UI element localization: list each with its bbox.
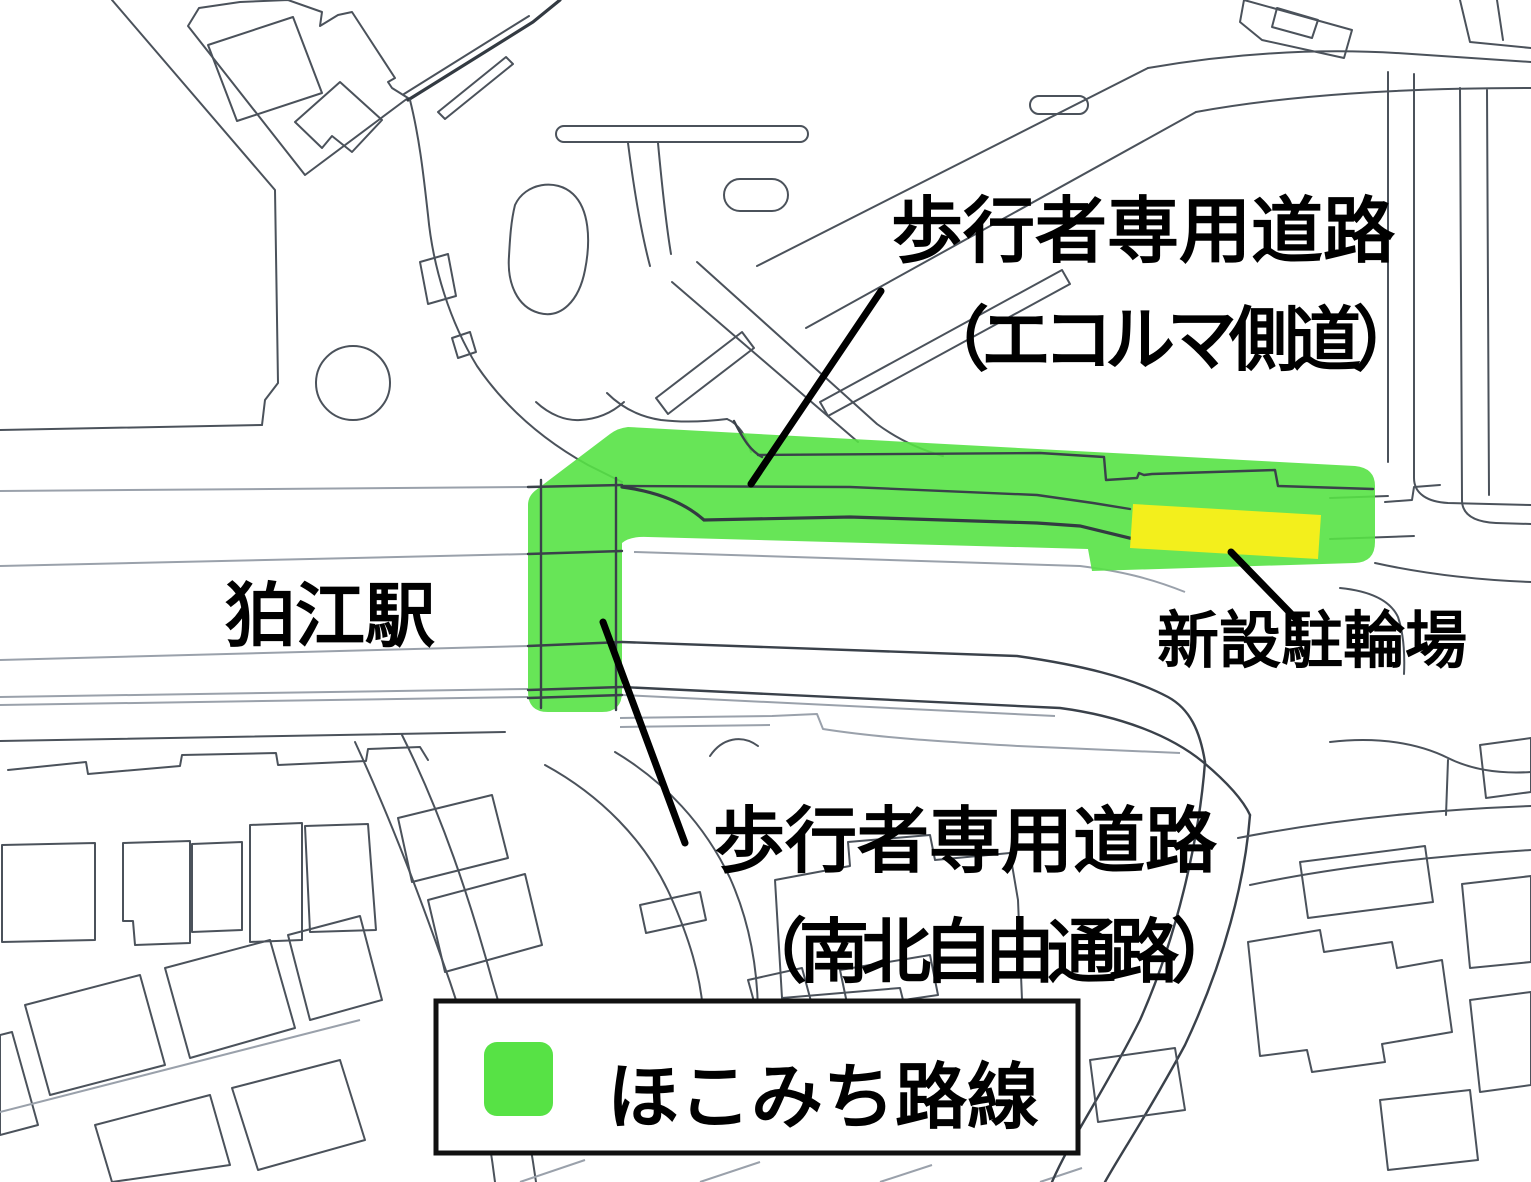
legend-label: ほこみち路線	[607, 1055, 1039, 1139]
map-labels: 歩行者専用道路 （エコルマ側道） 狛江駅 新設駐輪場 歩行者専用道路 （南北自由…	[225, 189, 1467, 993]
leader-line-nanboku	[603, 622, 685, 843]
label-new-bicycle-parking: 新設駐輪場	[1157, 604, 1467, 677]
map-canvas: 歩行者専用道路 （エコルマ側道） 狛江駅 新設駐輪場 歩行者専用道路 （南北自由…	[0, 0, 1531, 1182]
label-pedestrian-road-nanboku-line1: 歩行者専用道路	[713, 799, 1218, 883]
label-komae-station: 狛江駅	[225, 575, 435, 657]
label-pedestrian-road-ecoruma-line1: 歩行者専用道路	[891, 189, 1396, 273]
label-pedestrian-road-nanboku-line2: （南北自由通路）	[737, 911, 1233, 993]
legend-box: ほこみち路線	[436, 1001, 1078, 1153]
label-pedestrian-road-ecoruma-line2: （エコルマ側道）	[919, 299, 1415, 381]
komae-station-map: 歩行者専用道路 （エコルマ側道） 狛江駅 新設駐輪場 歩行者専用道路 （南北自由…	[0, 0, 1531, 1182]
legend-swatch	[484, 1042, 553, 1116]
